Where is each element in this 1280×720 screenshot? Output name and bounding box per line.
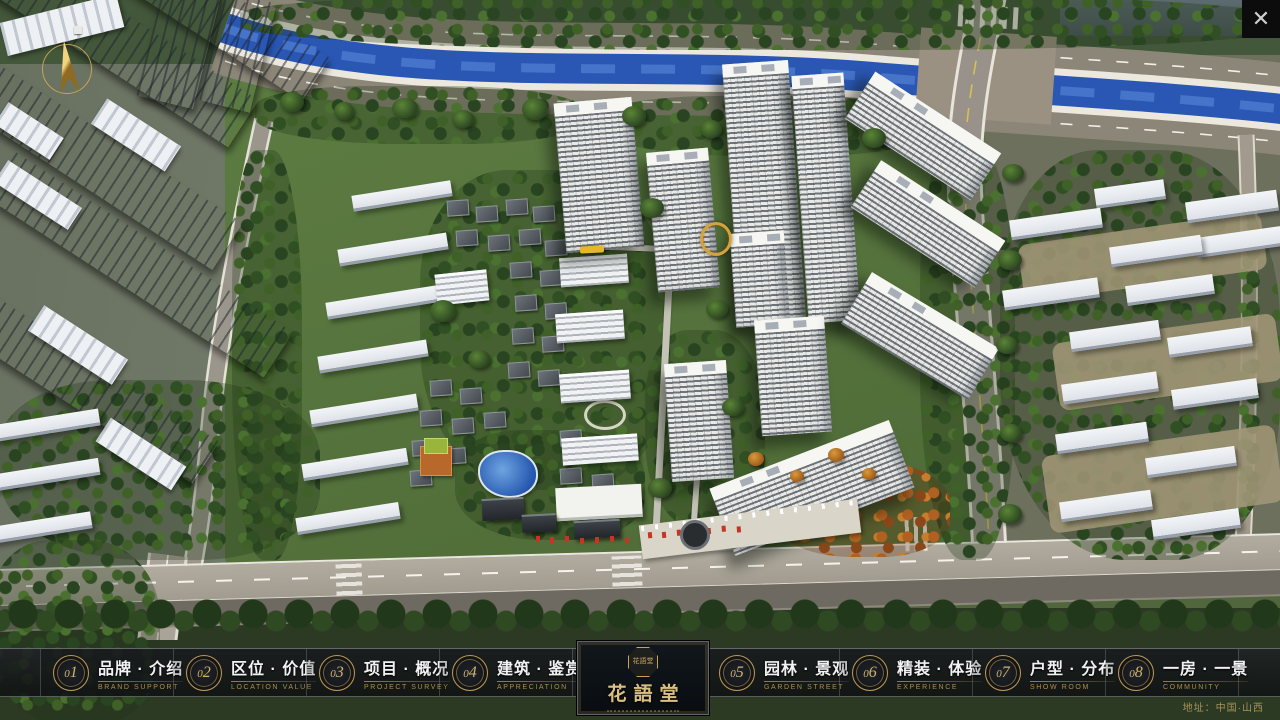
masterplan-3d-view[interactable] <box>0 0 1280 720</box>
nav-item-floorplan-distribution[interactable]: 07 户型 · 分布 SHOW ROOM <box>972 649 1105 696</box>
nav-number-badge: 01 <box>53 655 89 691</box>
nav-label-cn: 区位 · 价值 <box>231 655 316 679</box>
nav-label-en: PROJECT SURVEY <box>364 684 450 691</box>
nav-label-divider <box>364 681 450 682</box>
nav-number-badge: 03 <box>319 655 355 691</box>
nav-label-en: APPRECIATION <box>497 684 582 691</box>
gate-pavilion-roof-2 <box>522 513 557 533</box>
nav-left-spacer <box>0 649 40 696</box>
swimming-pool <box>478 450 538 498</box>
nav-number-badge: 08 <box>1118 655 1154 691</box>
nav-number-badge: 02 <box>186 655 222 691</box>
sales-center <box>555 484 643 521</box>
nav-label-en: EXPERIENCE <box>897 684 982 691</box>
nav-item-interior-experience[interactable]: 06 精装 · 体验 EXPERIENCE <box>839 649 972 696</box>
project-seal-icon: 花語堂 <box>628 647 658 677</box>
nav-label-divider <box>1163 681 1248 682</box>
nav-number-badge: 04 <box>452 655 488 691</box>
crosswalk-west <box>335 563 362 596</box>
nav-label-en: SHOW ROOM <box>1030 684 1115 691</box>
entrance-roundabout <box>680 520 710 550</box>
crosswalk-entrance <box>611 555 642 586</box>
project-subtitle-line <box>607 710 679 712</box>
nav-item-garden-landscape[interactable]: 05 园林 · 景观 GARDEN STREET <box>706 649 839 696</box>
nav-label-cn: 品牌 · 介绍 <box>98 655 183 679</box>
nav-label-divider <box>497 681 582 682</box>
nav-label-en: COMMUNITY <box>1163 684 1248 691</box>
presentation-window: ✕ 01 品牌 · 介绍 BRAND SUPPORT 02 区位 · 价值 LO… <box>0 0 1280 720</box>
nav-label-divider <box>1030 681 1115 682</box>
nav-label-en: LOCATION VALUE <box>231 684 316 691</box>
nav-item-project-survey[interactable]: 03 项目 · 概况 PROJECT SURVEY <box>306 649 439 696</box>
nav-item-room-view[interactable]: 08 一房 · 一景 COMMUNITY <box>1105 649 1238 696</box>
compass-north-indicator <box>40 34 96 96</box>
nav-label-cn: 精装 · 体验 <box>897 655 982 679</box>
compass-tag <box>74 26 82 34</box>
nav-label-cn: 园林 · 景观 <box>764 655 849 679</box>
project-logo-panel[interactable]: 花語堂 花語堂 <box>577 641 709 715</box>
boulevard-tree-row <box>0 596 1280 634</box>
nav-number-badge: 07 <box>985 655 1021 691</box>
nav-item-architecture[interactable]: 04 建筑 · 鉴赏 APPRECIATION <box>439 649 572 696</box>
north-forest-strip <box>240 0 1280 50</box>
project-name: 花語堂 <box>600 679 685 706</box>
project-address: 地址：中国·山西 <box>1144 699 1264 714</box>
shuttle-bus <box>580 245 604 253</box>
parked-cars <box>536 536 596 544</box>
nav-label-cn: 一房 · 一景 <box>1163 655 1248 679</box>
close-icon: ✕ <box>1252 6 1270 32</box>
nav-label-divider <box>231 681 316 682</box>
nav-label-en: GARDEN STREET <box>764 684 849 691</box>
clubhouse-court <box>424 438 448 454</box>
gate-pavilion-roof-1 <box>481 497 524 521</box>
garden-circle <box>584 400 626 430</box>
close-button[interactable]: ✕ <box>1242 0 1280 38</box>
nav-label-en: BRAND SUPPORT <box>98 684 183 691</box>
nav-number-badge: 06 <box>852 655 888 691</box>
nav-label-cn: 建筑 · 鉴赏 <box>497 655 582 679</box>
nav-number-badge: 05 <box>719 655 755 691</box>
nav-item-location-value[interactable]: 02 区位 · 价值 LOCATION VALUE <box>173 649 306 696</box>
nav-label-cn: 项目 · 概况 <box>364 655 450 679</box>
nav-item-brand-intro[interactable]: 01 品牌 · 介绍 BRAND SUPPORT <box>40 649 173 696</box>
nav-label-divider <box>98 681 183 682</box>
nav-label-divider <box>897 681 982 682</box>
gold-arch-sculpture <box>700 222 732 256</box>
nav-label-divider <box>764 681 849 682</box>
nav-right-spacer <box>1238 649 1279 696</box>
nav-label-cn: 户型 · 分布 <box>1030 655 1115 679</box>
